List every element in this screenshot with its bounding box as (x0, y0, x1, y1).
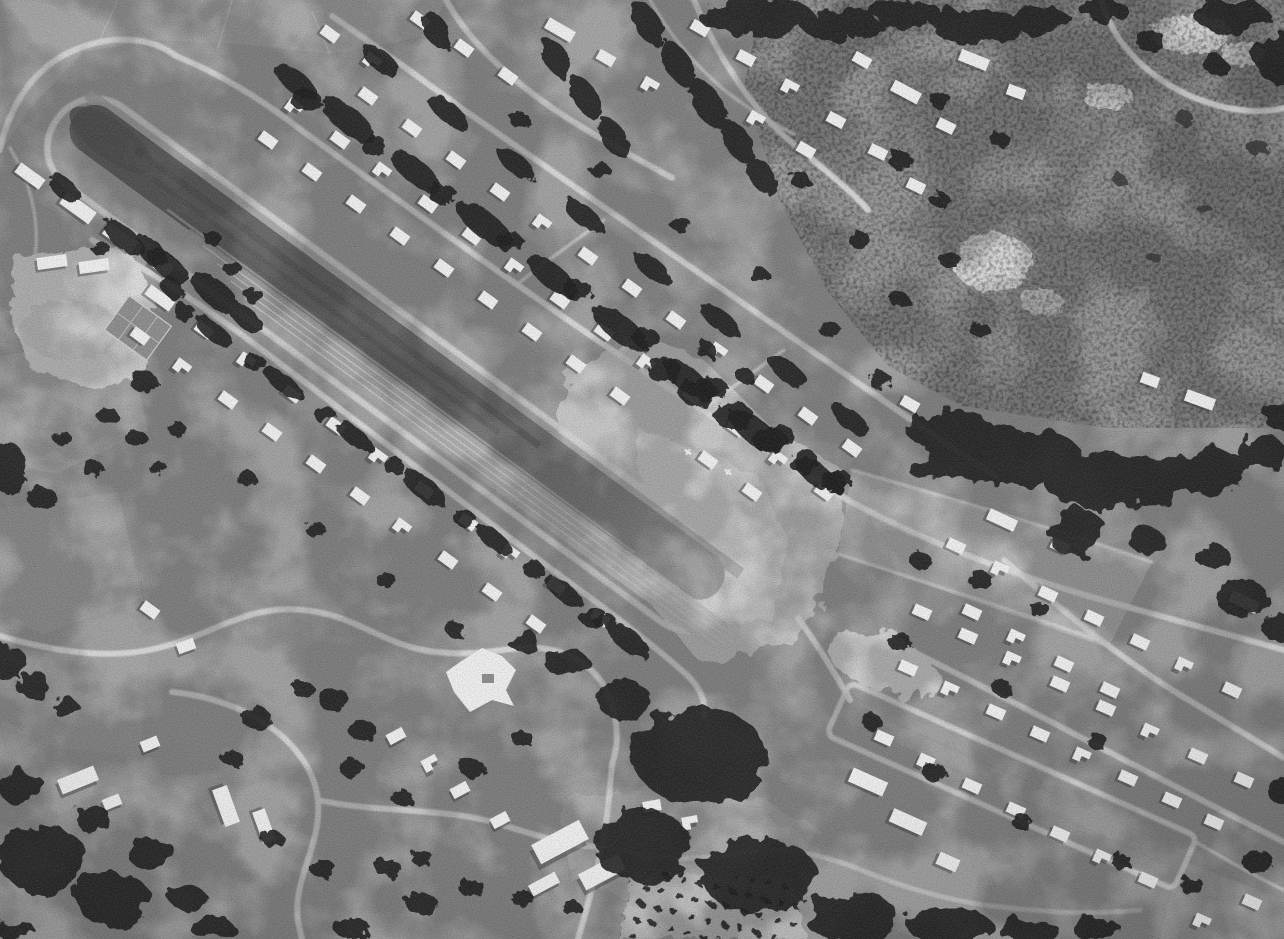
vignette (0, 0, 1284, 939)
aerial-photo-stage: aerial-photograph (0, 0, 1284, 939)
aerial-photograph: aerial-photograph (0, 0, 1284, 939)
